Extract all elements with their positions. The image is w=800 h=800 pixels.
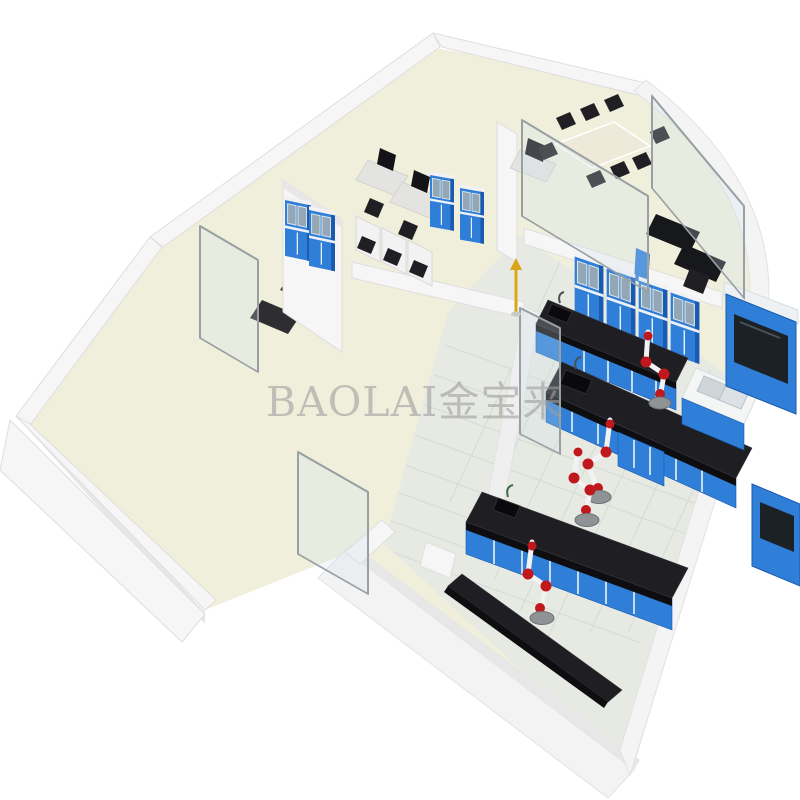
blue-glass-cabinet bbox=[285, 196, 311, 261]
watermark-text: BAOLAI金宝来 bbox=[266, 368, 564, 428]
blue-glass-cabinet bbox=[460, 184, 484, 243]
wall-workstation-divider bbox=[497, 122, 517, 262]
blue-glass-cabinet bbox=[309, 206, 335, 271]
blue-glass-cabinet bbox=[430, 171, 454, 230]
lab-3d-render: BAOLAI金宝来 bbox=[0, 0, 800, 800]
